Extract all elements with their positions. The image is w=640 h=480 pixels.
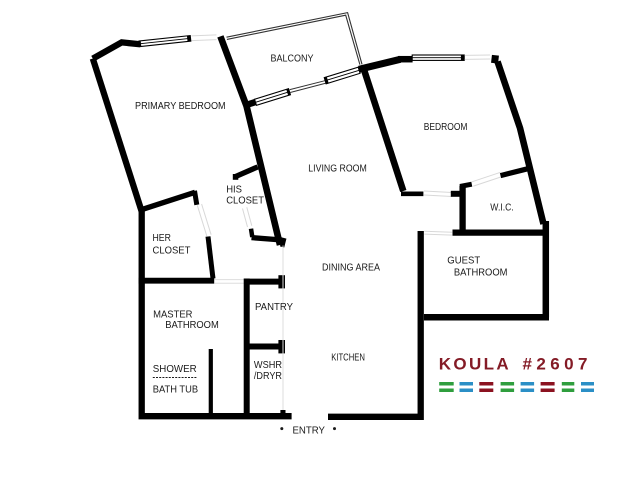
svg-text:W.I.C.: W.I.C. xyxy=(490,201,514,213)
svg-text:PRIMARY BEDROOM: PRIMARY BEDROOM xyxy=(135,100,226,112)
svg-text:WSHR: WSHR xyxy=(254,359,282,371)
svg-text:ENTRY: ENTRY xyxy=(293,425,326,437)
svg-text:KOULA: KOULA xyxy=(439,354,509,373)
svg-text:PANTRY: PANTRY xyxy=(255,301,293,313)
svg-text:SHOWER: SHOWER xyxy=(153,363,197,375)
svg-text:BATHROOM: BATHROOM xyxy=(165,319,219,331)
svg-text:DINING AREA: DINING AREA xyxy=(322,262,380,274)
svg-text:BATHROOM: BATHROOM xyxy=(454,267,508,279)
svg-text:HER: HER xyxy=(153,232,172,244)
svg-text:/DRYR: /DRYR xyxy=(254,370,282,382)
svg-text:KITCHEN: KITCHEN xyxy=(331,352,365,364)
svg-text:CLOSET: CLOSET xyxy=(226,194,264,206)
svg-text:CLOSET: CLOSET xyxy=(153,244,191,256)
svg-text:BATH TUB: BATH TUB xyxy=(153,384,198,396)
svg-text:BALCONY: BALCONY xyxy=(271,53,314,65)
svg-text:LIVING ROOM: LIVING ROOM xyxy=(308,162,367,174)
svg-text:GUEST: GUEST xyxy=(447,255,480,267)
svg-text:BEDROOM: BEDROOM xyxy=(424,121,468,133)
